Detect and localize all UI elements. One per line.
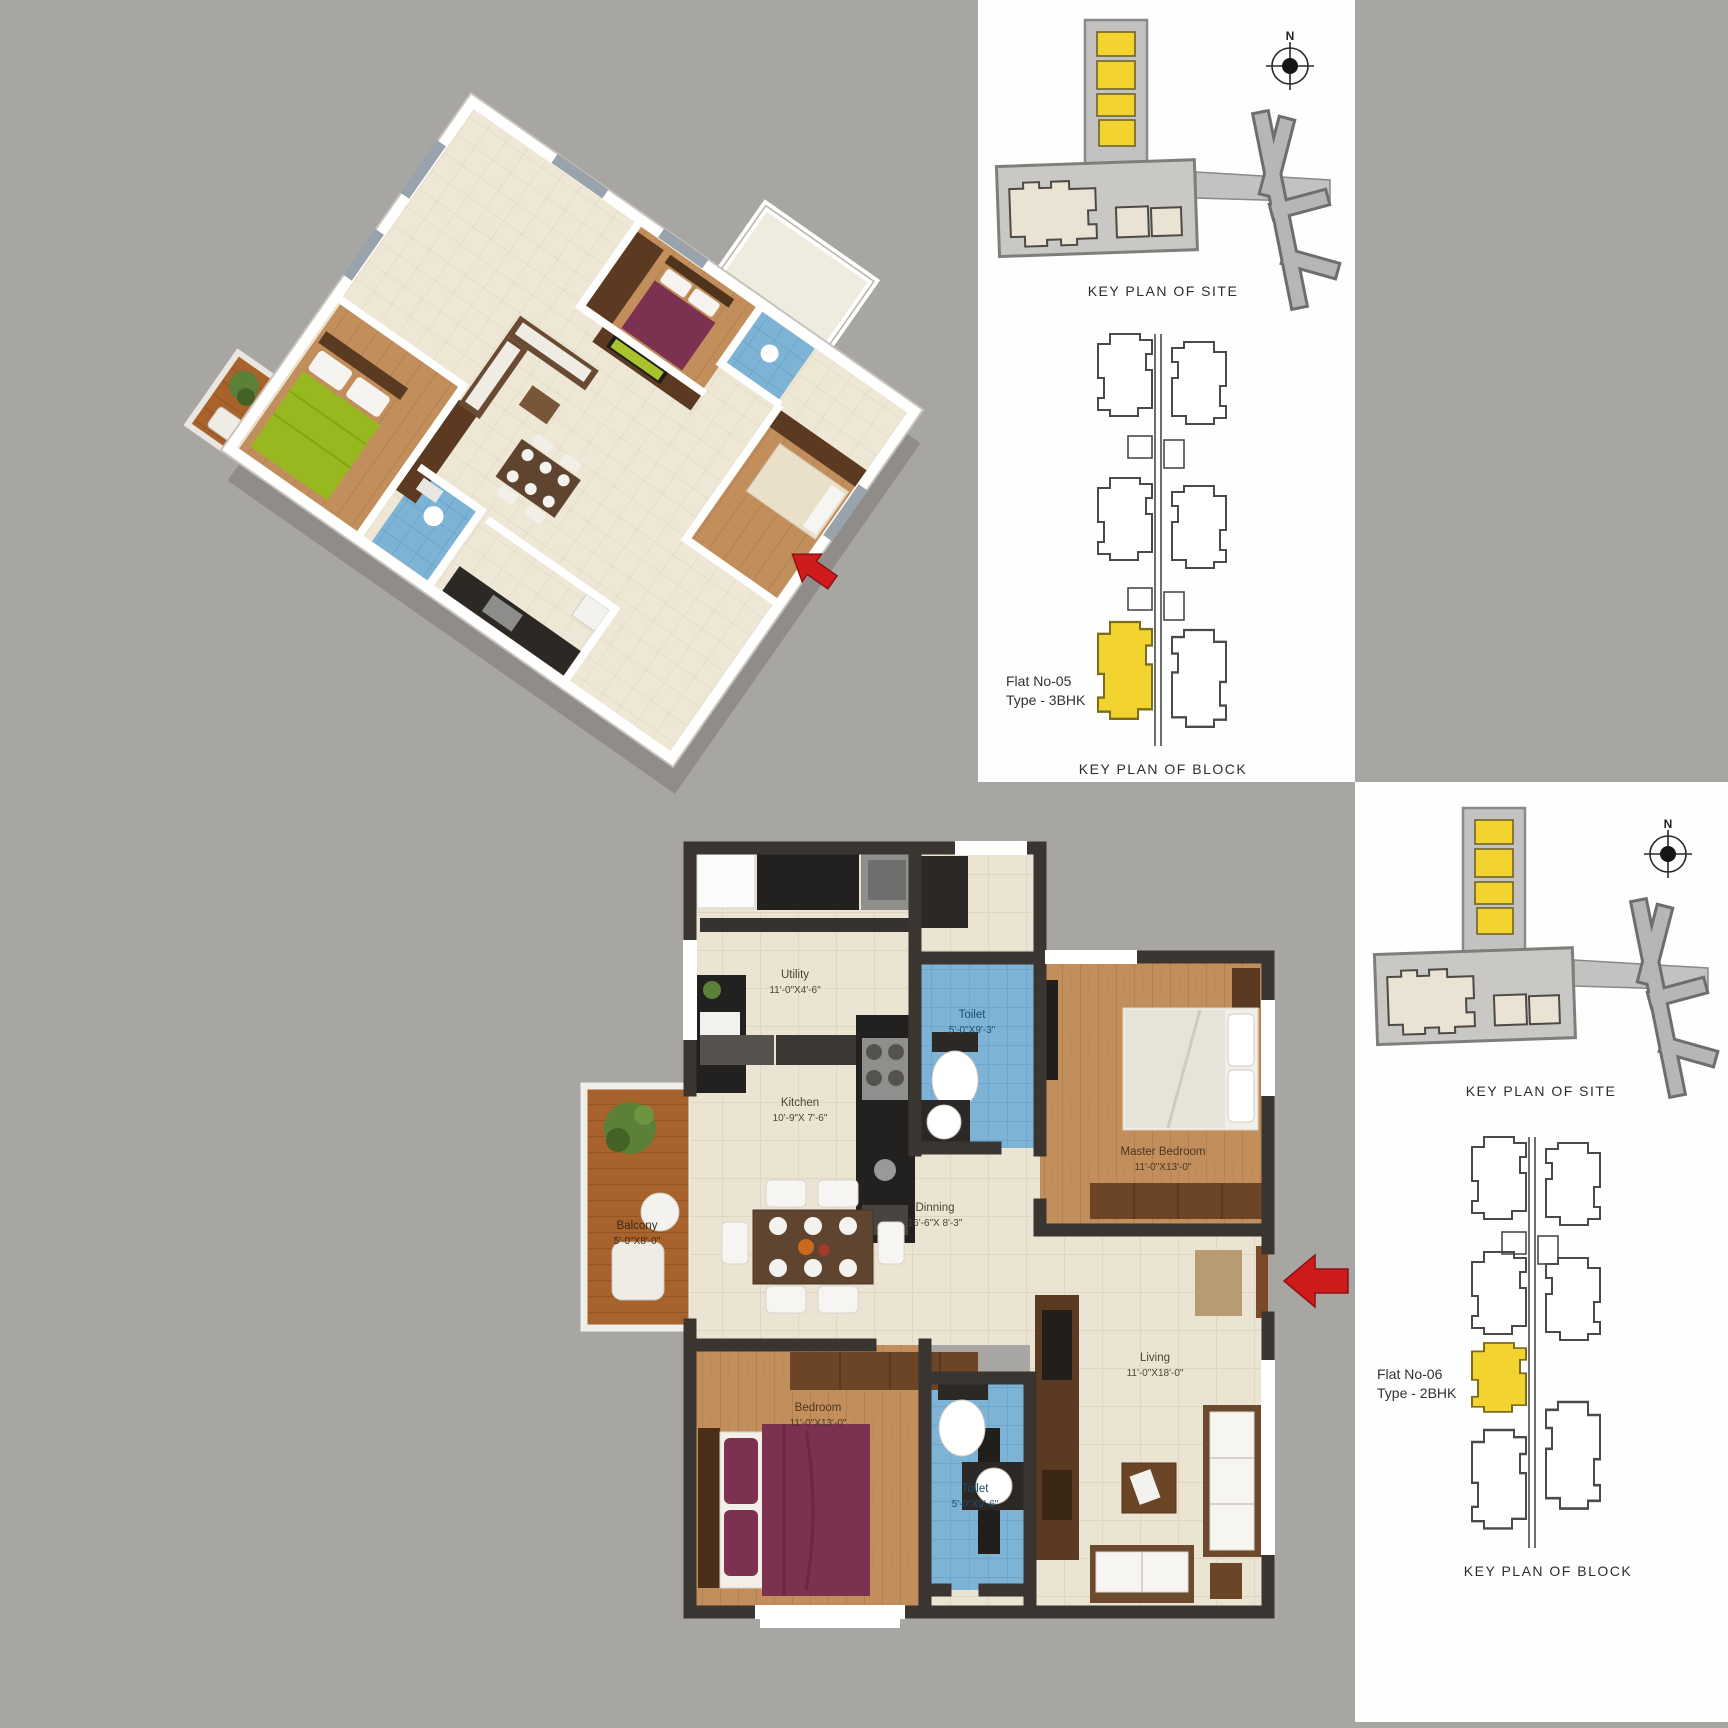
key-panel-flat05: [978, 0, 1355, 782]
utility-label: Utility: [781, 969, 809, 981]
floor-plan-brochure-page: N KEY PLAN OF SITE Flat No-05 Type - 3BH…: [0, 0, 1728, 1728]
kitchen-label: Kitchen: [781, 1097, 819, 1109]
flat05-block-title: KEY PLAN OF BLOCK: [1079, 761, 1247, 777]
dinning-dims: 16'-6"X 8'-3": [908, 1218, 963, 1229]
flat06-block-title: KEY PLAN OF BLOCK: [1464, 1563, 1632, 1579]
flat06-number-label: Flat No-06: [1377, 1366, 1443, 1382]
key-panel-flat06: [1355, 782, 1728, 1722]
flat06-compass-icon: N: [1664, 817, 1673, 831]
flat05-highlighted-unit: [1098, 622, 1152, 719]
living-dims: 11'-0"X18'-0": [1127, 1368, 1184, 1379]
flat06-highlighted-unit: [1472, 1343, 1526, 1412]
flat05-site-title: KEY PLAN OF SITE: [1088, 283, 1239, 299]
master-bedroom-label: Master Bedroom: [1120, 1146, 1205, 1158]
toilet-bottom-label: Toilet: [962, 1483, 990, 1495]
floor-plan-2d: Utility 11'-0"X4'-6" Toilet 5'-0"X9'-3" …: [584, 841, 1348, 1628]
flat05-compass-icon: N: [1286, 29, 1295, 43]
flat05-number-label: Flat No-05: [1006, 673, 1072, 689]
bedroom-label: Bedroom: [795, 1402, 842, 1414]
toilet-top-dims: 5'-0"X9'-3": [949, 1025, 996, 1036]
brochure-graphic: N KEY PLAN OF SITE Flat No-05 Type - 3BH…: [0, 0, 1728, 1728]
flat06-type-label: Type - 2BHK: [1377, 1385, 1457, 1401]
bedroom-dims: 11'-0"X13'-0": [790, 1418, 847, 1429]
utility-dims: 11'-0"X4'-6": [769, 985, 821, 996]
dinning-label: Dinning: [916, 1202, 955, 1214]
flat06-site-title: KEY PLAN OF SITE: [1466, 1083, 1617, 1099]
living-label: Living: [1140, 1352, 1170, 1364]
balcony-label: Balcony: [617, 1220, 658, 1232]
kitchen-dims: 10'-9"X 7'-6": [773, 1113, 828, 1124]
balcony-dims: 5'-0"X8'-0": [614, 1236, 661, 1247]
toilet-bottom-dims: 5'-0"X9'-6": [952, 1499, 999, 1510]
flat05-type-label: Type - 3BHK: [1006, 692, 1086, 708]
master-bedroom-dims: 11'-0"X13'-0": [1135, 1162, 1192, 1173]
toilet-top-label: Toilet: [959, 1009, 987, 1021]
